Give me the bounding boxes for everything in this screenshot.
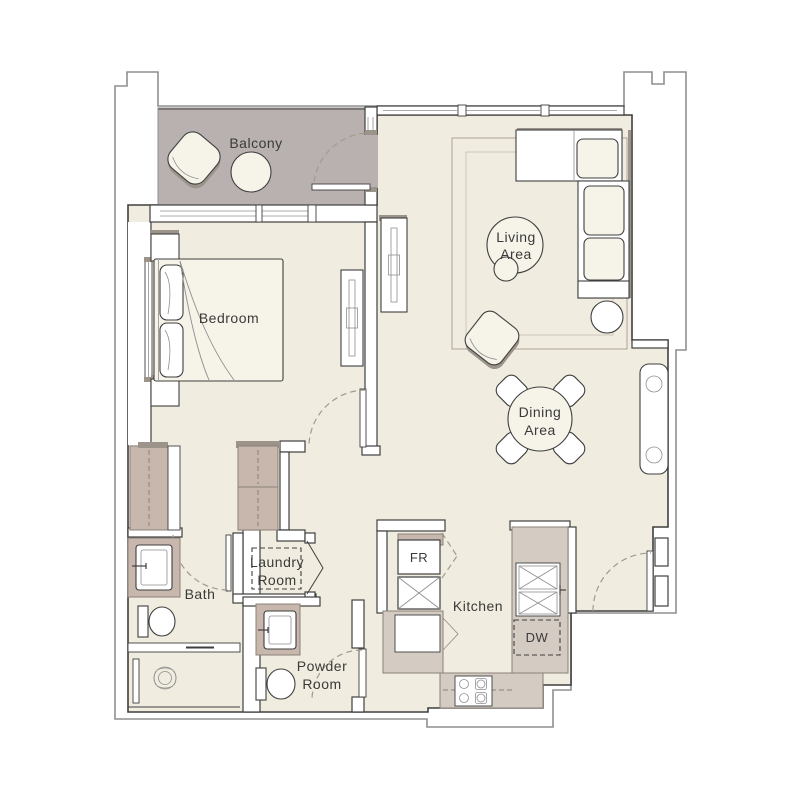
bath-label: Bath bbox=[185, 586, 216, 602]
living-label-line1: Living bbox=[496, 229, 536, 245]
powder-toilet-tank bbox=[256, 668, 266, 700]
entry-door-leaf bbox=[647, 551, 653, 611]
kitchen-right-wall bbox=[568, 527, 576, 613]
kitchen-left-wall bbox=[377, 531, 387, 613]
kitchen-sink-unit bbox=[516, 563, 560, 616]
powder-label-line2: Room bbox=[302, 676, 341, 692]
dishwasher-label: DW bbox=[526, 630, 549, 645]
kitchen-label: Kitchen bbox=[453, 598, 503, 614]
dining-label-line2: Area bbox=[524, 422, 556, 438]
powder-right-wall bbox=[352, 600, 364, 648]
entry-frame bbox=[655, 576, 668, 606]
laundry-label-line2: Room bbox=[257, 572, 296, 588]
shower-glass bbox=[133, 659, 139, 703]
dining-label-line1: Dining bbox=[519, 404, 562, 420]
fridge-label: FR bbox=[410, 550, 428, 565]
sofa-cushion bbox=[577, 139, 618, 178]
wardrobe-1-door bbox=[168, 446, 180, 530]
window-mullion bbox=[458, 105, 466, 116]
laundry-left-wall bbox=[233, 533, 243, 599]
balcony-door-opening bbox=[364, 135, 378, 188]
nightstand bbox=[151, 379, 179, 406]
side-table bbox=[591, 301, 623, 333]
bath-toilet-bowl bbox=[149, 607, 175, 636]
hall-wall bbox=[280, 441, 305, 452]
living-dining-step-wall bbox=[632, 340, 668, 348]
bedroom-door-leaf bbox=[360, 389, 366, 447]
balcony-table bbox=[231, 152, 271, 192]
kitchen-cabinet bbox=[395, 615, 440, 652]
balcony-door-leaf bbox=[312, 184, 370, 190]
bedroom-label: Bedroom bbox=[199, 310, 259, 326]
bedroom-window-wall bbox=[150, 205, 377, 222]
shower-threshold bbox=[128, 643, 240, 652]
floor-plan-drawing: Balcony Bedroom Living Area Dining Area … bbox=[0, 0, 800, 800]
bedroom-living-wall bbox=[365, 222, 377, 448]
entry-frame bbox=[655, 538, 668, 566]
sofa-armrest bbox=[578, 281, 629, 298]
pillow bbox=[160, 323, 183, 377]
living-label-line2: Area bbox=[500, 246, 532, 262]
powder-toilet-bowl bbox=[267, 669, 295, 699]
bath-toilet-tank bbox=[138, 606, 148, 637]
kitchen-top-wall-left bbox=[377, 520, 445, 531]
powder-door-leaf bbox=[359, 649, 366, 697]
floor-plan-page: Balcony Bedroom Living Area Dining Area … bbox=[0, 0, 800, 800]
living-dresser bbox=[381, 218, 407, 312]
nightstand bbox=[151, 234, 179, 261]
powder-fixtures bbox=[256, 604, 300, 700]
laundry-label-line1: Laundry bbox=[250, 554, 304, 570]
sofa-cushion bbox=[584, 238, 624, 280]
balcony-label: Balcony bbox=[229, 135, 282, 151]
powder-label-line1: Powder bbox=[297, 658, 347, 674]
console-table bbox=[640, 364, 668, 474]
window-mullion bbox=[541, 105, 549, 116]
bath-door-leaf bbox=[226, 535, 231, 591]
pillow bbox=[160, 265, 183, 320]
sofa-cushion bbox=[584, 186, 624, 235]
bedroom-dresser bbox=[341, 270, 363, 366]
